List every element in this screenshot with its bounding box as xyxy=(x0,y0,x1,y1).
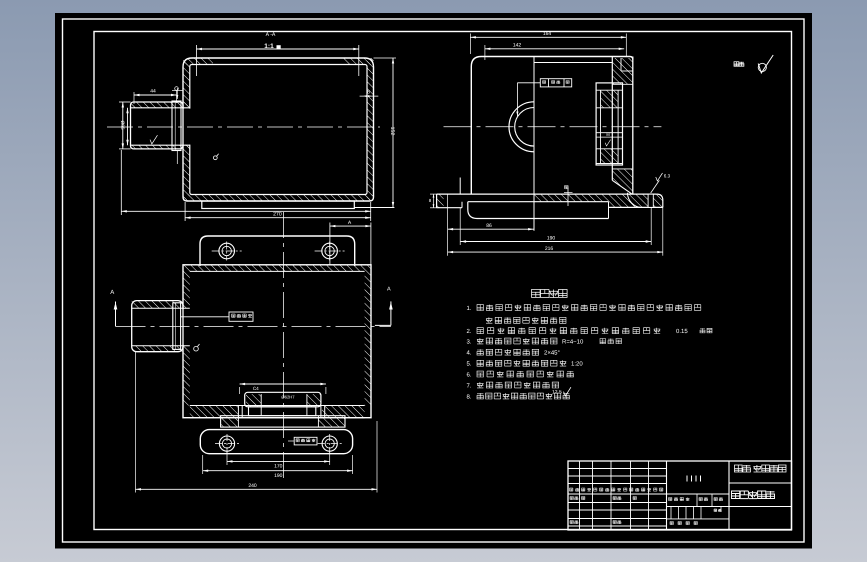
svg-text:A: A xyxy=(387,287,391,293)
svg-text:A: A xyxy=(110,289,114,296)
svg-text:190: 190 xyxy=(547,235,556,241)
svg-text:44: 44 xyxy=(150,89,156,95)
svg-text:R=4~10: R=4~10 xyxy=(562,339,584,346)
svg-text:C4: C4 xyxy=(253,386,259,391)
svg-text:1.: 1. xyxy=(466,305,471,312)
svg-text:2.: 2. xyxy=(466,328,471,335)
svg-text:8.: 8. xyxy=(466,394,471,401)
svg-text:8: 8 xyxy=(367,90,370,96)
svg-text:5.: 5. xyxy=(466,361,471,368)
svg-text:152: 152 xyxy=(389,127,395,136)
svg-text:240: 240 xyxy=(248,483,257,489)
svg-text:1:20: 1:20 xyxy=(571,361,583,368)
svg-text:7.: 7. xyxy=(466,383,471,390)
svg-text:4.: 4. xyxy=(466,350,471,357)
svg-text:6.3: 6.3 xyxy=(664,174,671,179)
svg-text:142: 142 xyxy=(513,43,522,49)
svg-text:86: 86 xyxy=(486,223,492,229)
svg-text:A -A: A -A xyxy=(266,32,276,38)
svg-text:0.15: 0.15 xyxy=(676,328,688,335)
svg-text:2×45°: 2×45° xyxy=(544,350,561,357)
svg-text:170: 170 xyxy=(274,463,283,469)
svg-text:164: 164 xyxy=(543,31,552,37)
svg-text:190: 190 xyxy=(274,473,283,479)
svg-text:12.5: 12.5 xyxy=(552,390,562,396)
svg-text:3.: 3. xyxy=(466,339,471,346)
svg-text:216: 216 xyxy=(545,246,554,252)
svg-text:Ø65: Ø65 xyxy=(119,120,125,129)
svg-text:M: M xyxy=(606,132,609,137)
svg-text:270: 270 xyxy=(273,212,282,218)
svg-text:6.: 6. xyxy=(466,372,471,379)
